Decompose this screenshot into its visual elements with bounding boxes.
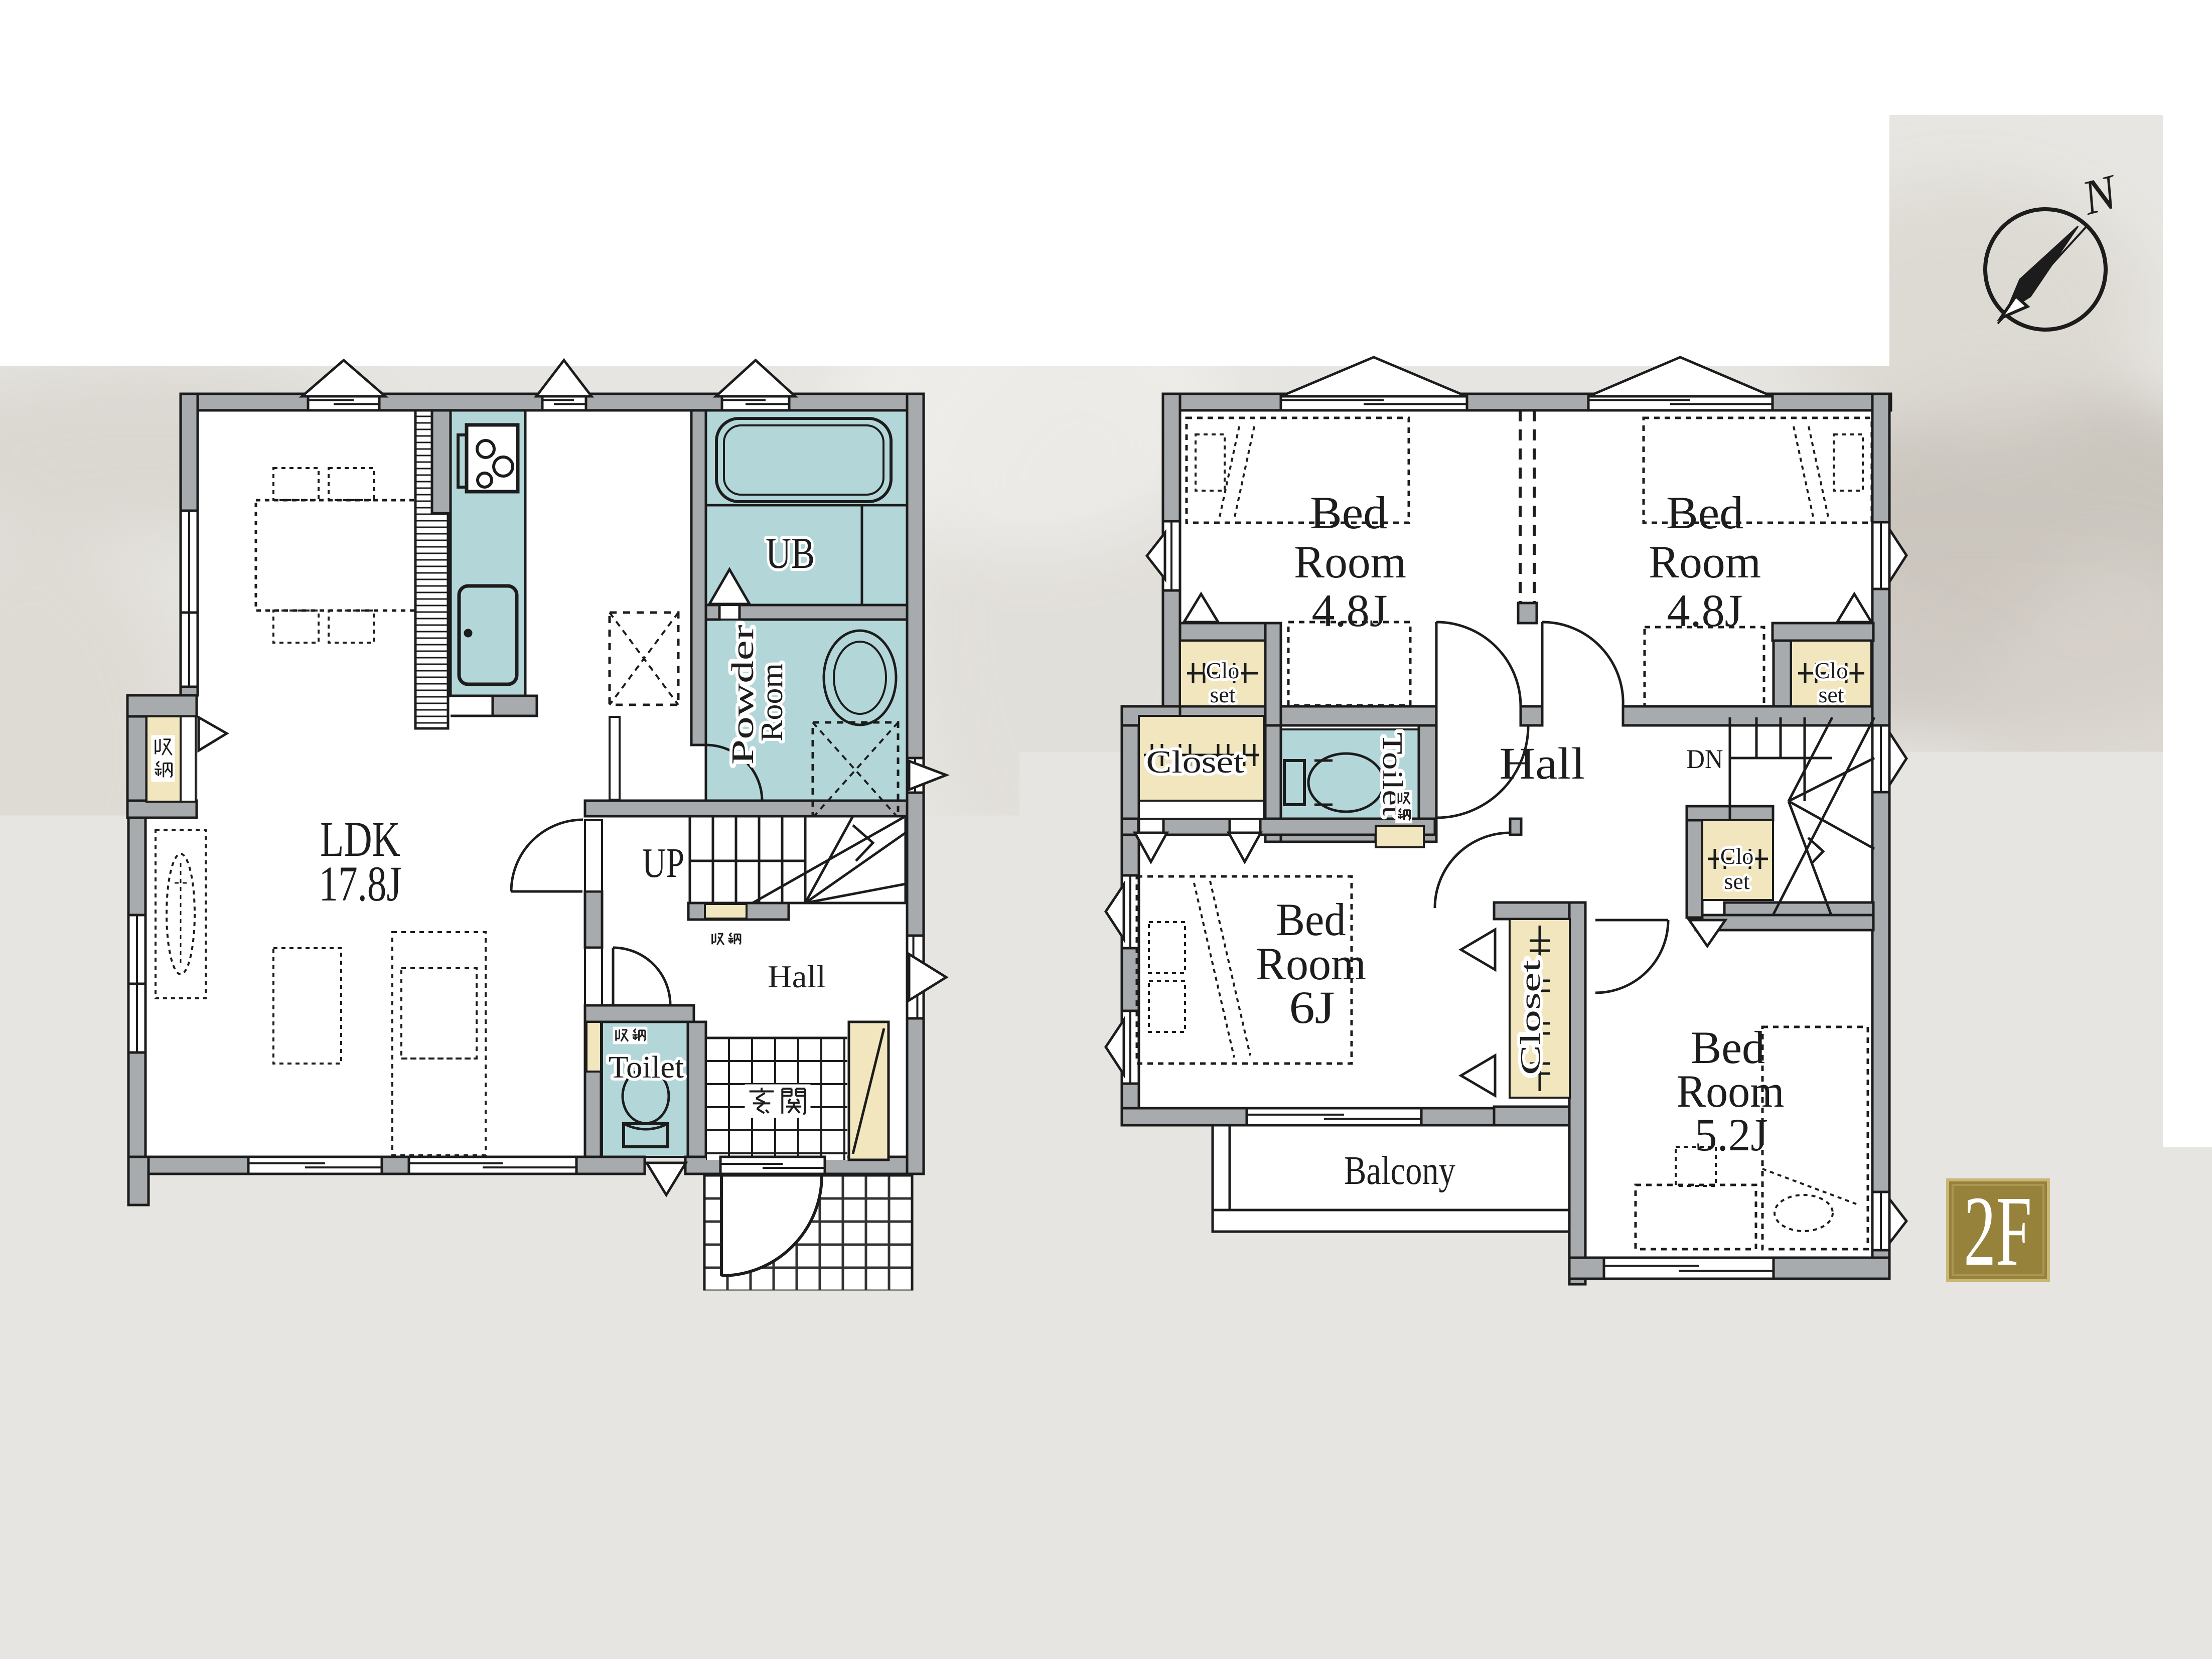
svg-text:Room: Room xyxy=(1294,536,1406,587)
svg-text:2F: 2F xyxy=(1964,1176,2032,1287)
svg-text:DN: DN xyxy=(1687,744,1723,774)
svg-text:set: set xyxy=(1210,682,1235,707)
svg-text:Hall: Hall xyxy=(1500,739,1585,789)
svg-text:UB: UB xyxy=(766,529,815,578)
svg-text:6J: 6J xyxy=(1289,982,1335,1033)
svg-text:4.8J: 4.8J xyxy=(1667,585,1743,636)
svg-text:Toilet: Toilet xyxy=(609,1050,684,1085)
svg-text:Hall: Hall xyxy=(768,959,826,994)
svg-text:set: set xyxy=(1724,868,1749,894)
svg-text:Bed: Bed xyxy=(1310,487,1387,538)
svg-text:Room: Room xyxy=(1649,536,1761,587)
svg-text:1F: 1F xyxy=(955,1338,1023,1449)
svg-text:Closet: Closet xyxy=(1515,959,1546,1075)
svg-text:Closet: Closet xyxy=(1146,744,1244,780)
svg-text:UP: UP xyxy=(642,840,684,886)
svg-text:set: set xyxy=(1818,682,1844,707)
svg-text:Balcony: Balcony xyxy=(1344,1149,1455,1193)
svg-text:Clo: Clo xyxy=(1206,658,1239,683)
svg-text:Bed: Bed xyxy=(1666,487,1743,538)
svg-text:Clo: Clo xyxy=(1815,658,1848,683)
svg-text:4.8J: 4.8J xyxy=(1312,585,1388,636)
svg-text:Bed: Bed xyxy=(1276,894,1346,945)
svg-text:Clo: Clo xyxy=(1720,843,1753,869)
svg-text:Room: Room xyxy=(755,663,789,741)
svg-text:17.8J: 17.8J xyxy=(319,856,402,912)
svg-text:5.2J: 5.2J xyxy=(1695,1109,1768,1160)
